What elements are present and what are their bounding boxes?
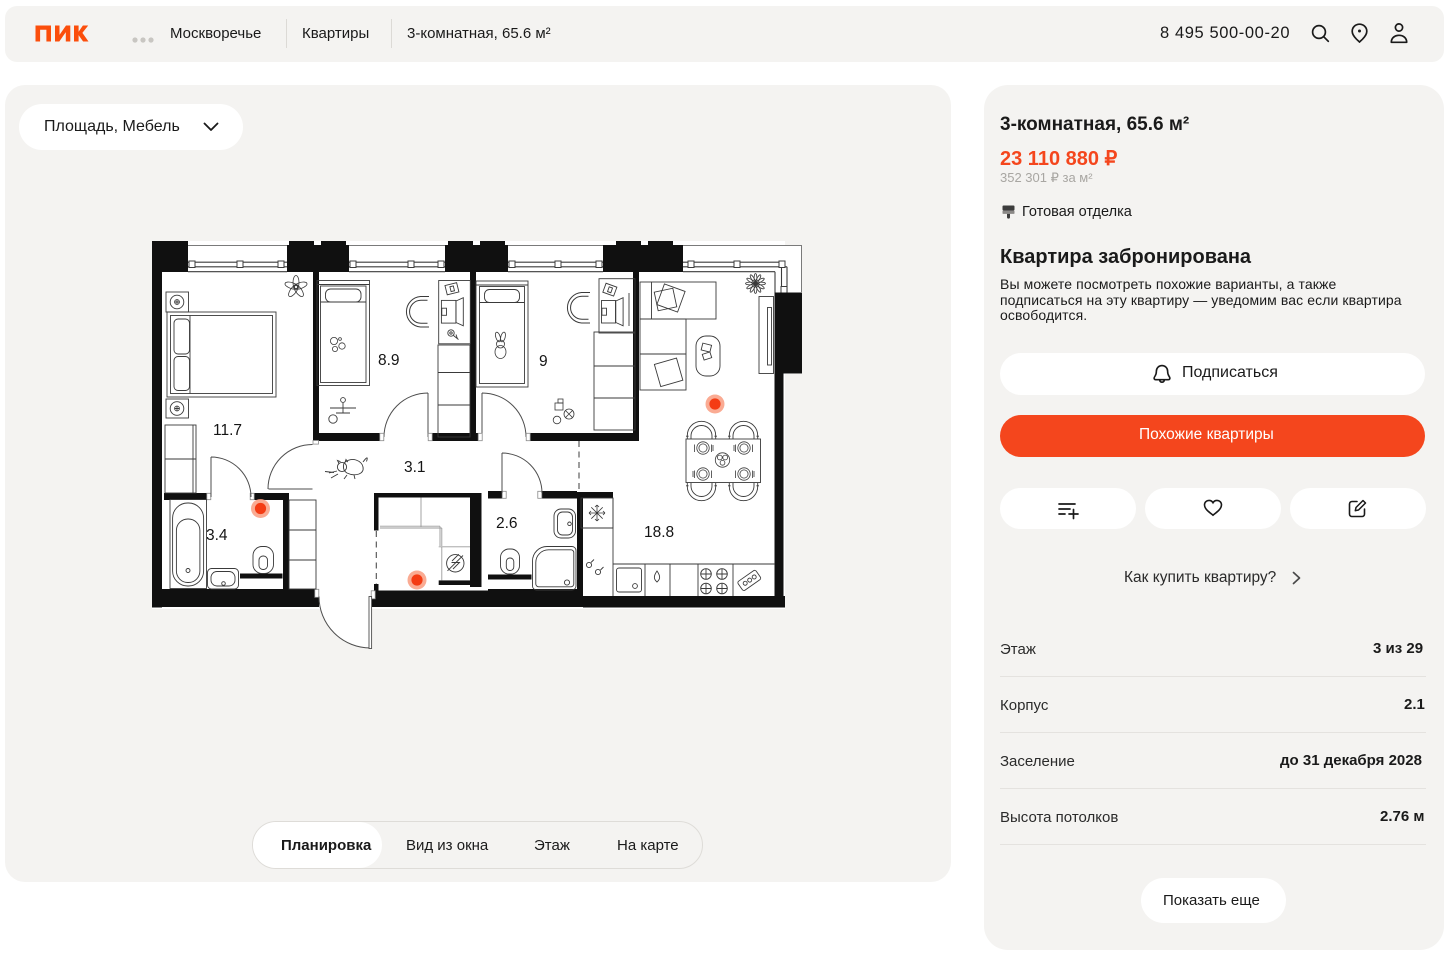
svg-text:2.6: 2.6 xyxy=(496,515,518,532)
svg-text:18.8: 18.8 xyxy=(644,524,674,541)
svg-text:9: 9 xyxy=(539,353,548,370)
svg-text:8.9: 8.9 xyxy=(378,352,400,369)
svg-text:3.1: 3.1 xyxy=(404,459,426,476)
svg-text:11.7: 11.7 xyxy=(213,422,242,439)
svg-text:3.4: 3.4 xyxy=(206,527,228,544)
